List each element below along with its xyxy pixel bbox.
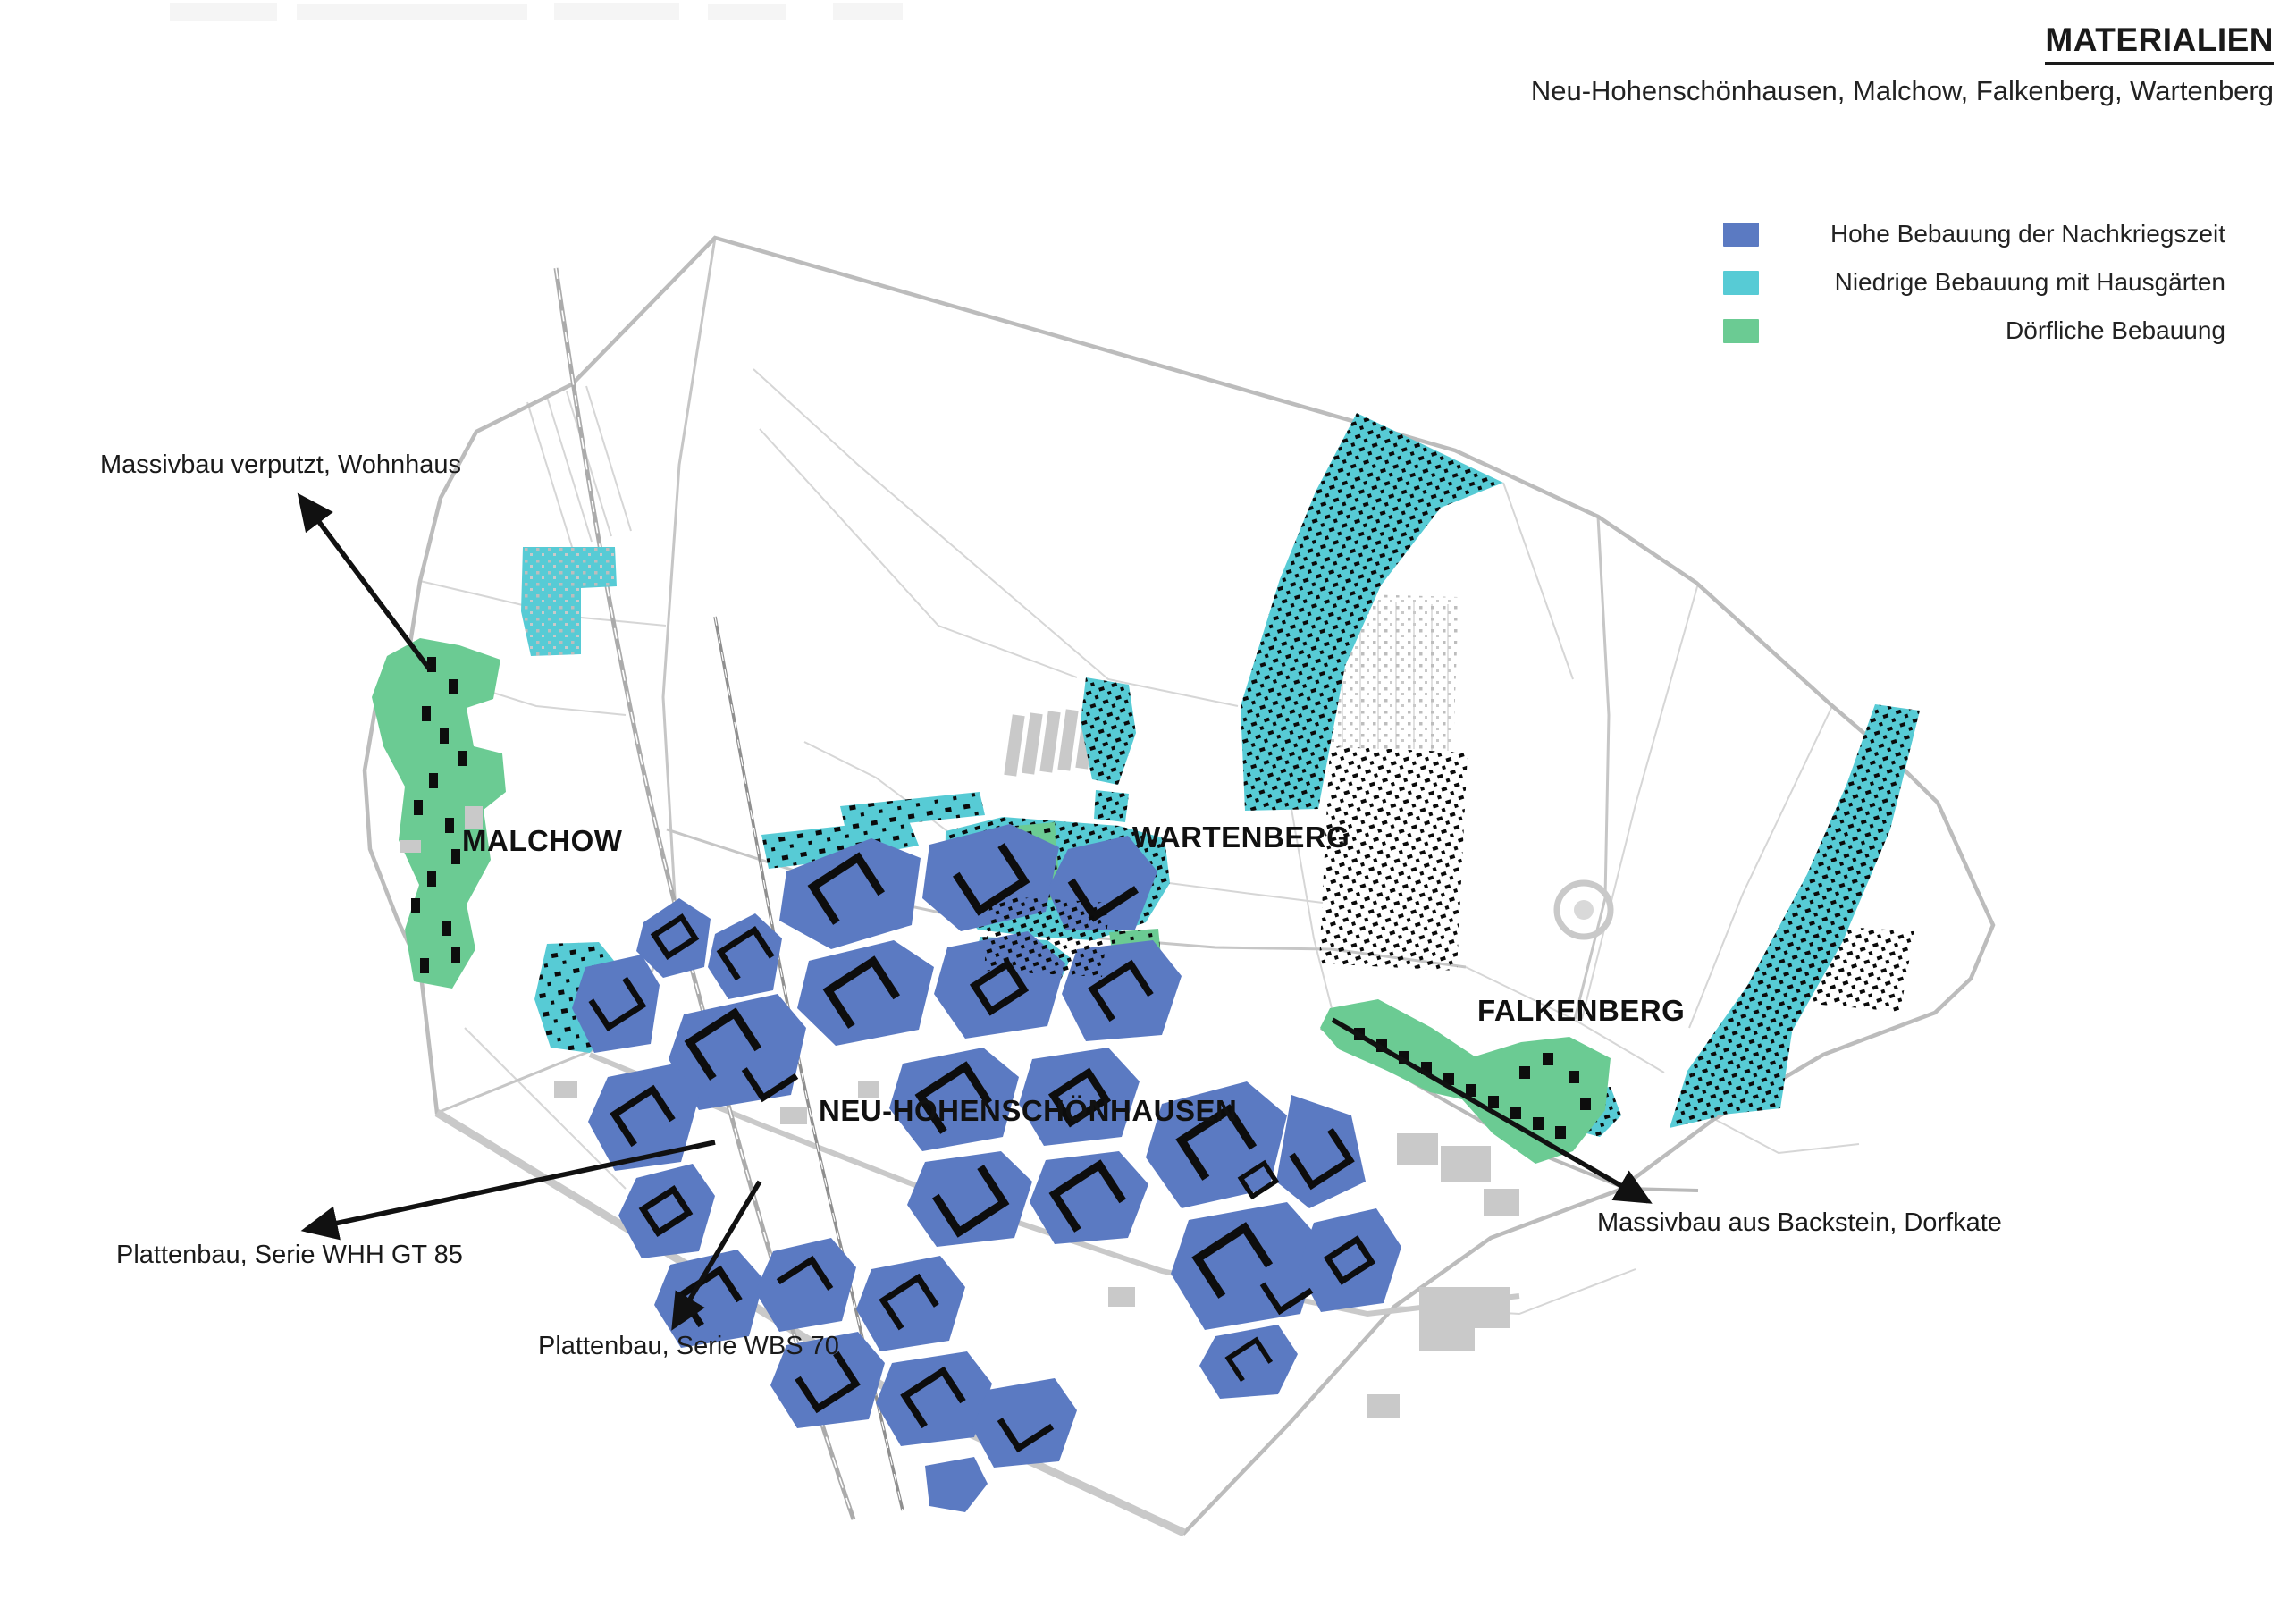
legend-swatch-low-rise-icon <box>1723 271 1759 295</box>
page-title: MATERIALIEN <box>2045 21 2274 65</box>
title-block: MATERIALIEN Neu-Hohenschönhausen, Malcho… <box>1531 21 2274 107</box>
district-label-wartenberg: WARTENBERG <box>1132 820 1350 854</box>
page-subtitle: Neu-Hohenschönhausen, Malchow, Falkenber… <box>1531 75 2274 107</box>
legend-label: Hohe Bebauung der Nachkriegszeit <box>1759 220 2225 248</box>
arrow-massivbau-verputzt <box>300 497 429 669</box>
legend-label: Niedrige Bebauung mit Hausgärten <box>1759 268 2225 297</box>
annotation-wbs-70: Plattenbau, Serie WBS 70 <box>538 1332 839 1361</box>
legend-item-doerfliche-bebauung: Dörfliche Bebauung <box>1723 316 2225 345</box>
annotation-massivbau-verputzt: Massivbau verputzt, Wohnhaus <box>100 450 461 480</box>
page: MATERIALIEN Neu-Hohenschönhausen, Malcho… <box>0 0 2288 1624</box>
district-label-falkenberg: FALKENBERG <box>1477 994 1685 1028</box>
legend-item-niedrige-bebauung: Niedrige Bebauung mit Hausgärten <box>1723 268 2225 297</box>
legend: Hohe Bebauung der Nachkriegszeit Niedrig… <box>1723 220 2225 365</box>
legend-swatch-high-rise-icon <box>1723 223 1759 247</box>
ghost-header-artifact <box>170 3 903 21</box>
annotation-backstein-dorfkate: Massivbau aus Backstein, Dorfkate <box>1597 1208 2002 1238</box>
legend-swatch-village-icon <box>1723 319 1759 343</box>
legend-item-hohe-bebauung: Hohe Bebauung der Nachkriegszeit <box>1723 220 2225 248</box>
annotation-whh-gt-85: Plattenbau, Serie WHH GT 85 <box>116 1241 463 1270</box>
district-label-neu-hohenschoenhausen: NEU-HOHENSCHÖNHAUSEN <box>819 1094 1237 1128</box>
legend-label: Dörfliche Bebauung <box>1759 316 2225 345</box>
district-label-malchow: MALCHOW <box>462 824 622 858</box>
